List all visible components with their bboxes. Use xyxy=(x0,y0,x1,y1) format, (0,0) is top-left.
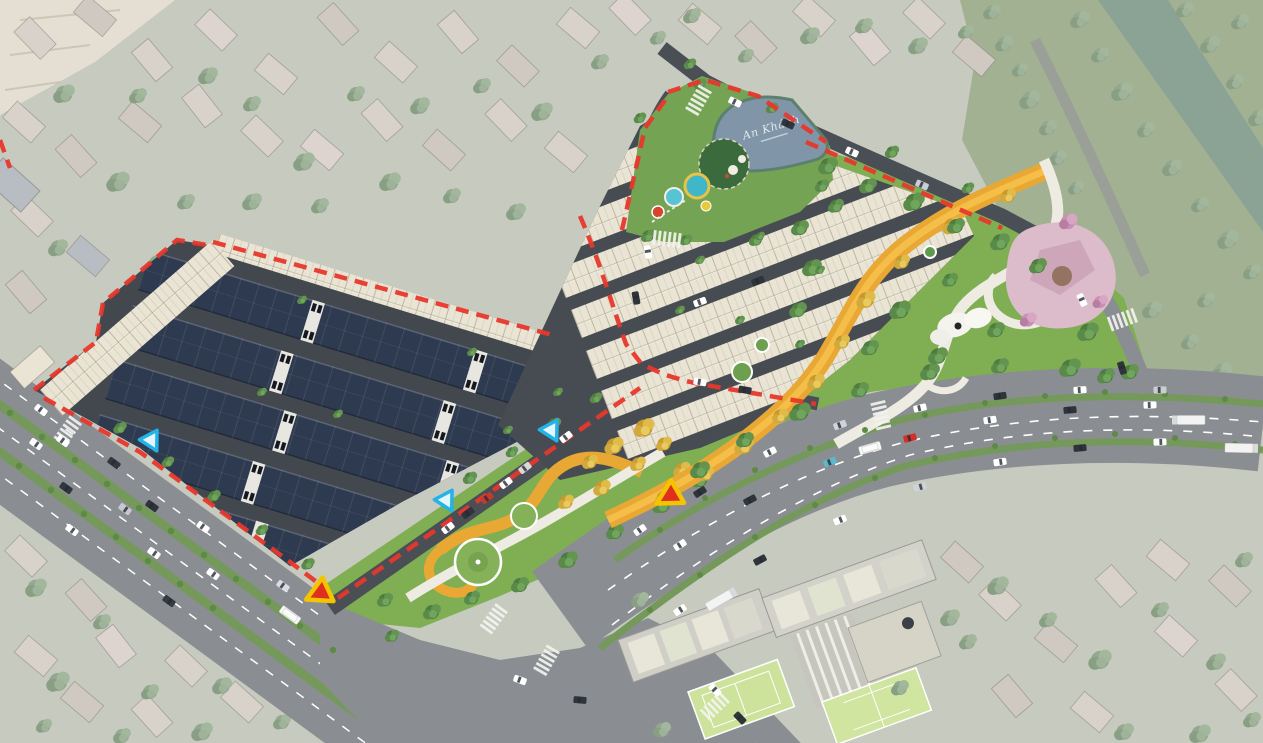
play-pool-1 xyxy=(685,174,709,198)
lawn-ring-small xyxy=(511,503,537,529)
masterplan-render: An Khánh xyxy=(0,0,1263,743)
park-poi-ring-3 xyxy=(924,246,936,258)
play-ring xyxy=(701,201,711,211)
play-ball xyxy=(652,206,664,218)
play-pool-2 xyxy=(665,188,683,206)
park-poi-ring-1 xyxy=(732,362,752,382)
masterplan-canvas: An Khánh xyxy=(0,0,1263,743)
park-poi-ring-2 xyxy=(755,338,769,352)
